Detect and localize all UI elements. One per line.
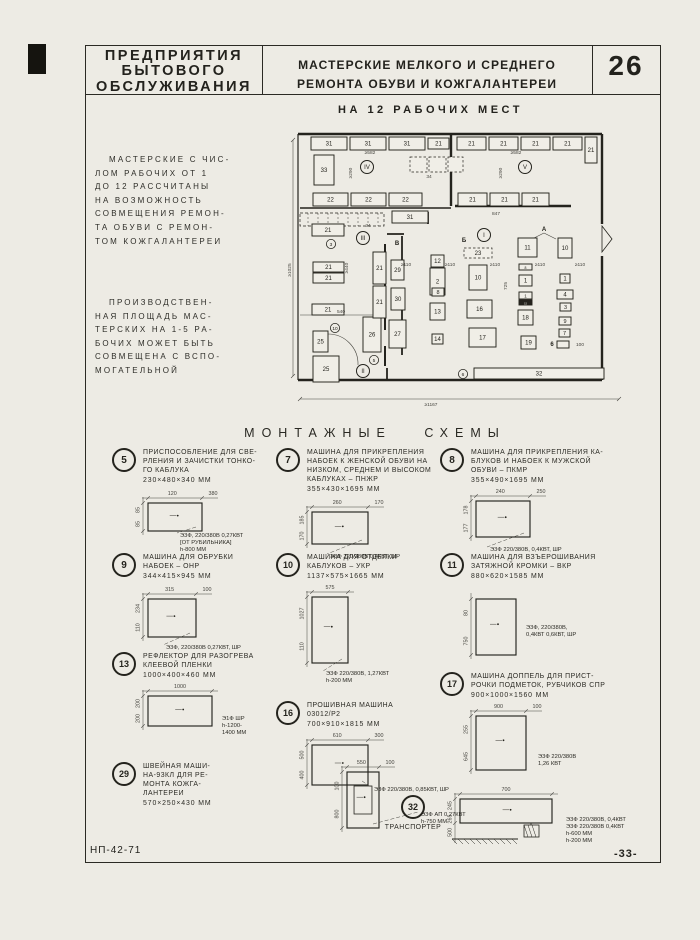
item-schematic: 80750Э3Ф, 220/380В,0,4КВТ 0,6КВТ, ШР [450, 583, 620, 667]
svg-text:500: 500 [300, 751, 306, 760]
svg-text:260: 260 [333, 500, 342, 506]
svg-text:21: 21 [532, 198, 539, 204]
svg-text:700: 700 [502, 787, 511, 793]
item-title: МАШИНА ДЛЯ ОБРУБКИ НАБОЕК – ОНР [143, 553, 233, 571]
item-schematic: 1000200200Э1Ф ШРh-1200-1400 ММ [122, 682, 287, 744]
svg-text:Б: Б [462, 238, 467, 244]
svg-text:240: 240 [496, 489, 505, 495]
item-dimensions: 355×490×1695 ММ [471, 477, 603, 484]
svg-text:34: 34 [426, 174, 432, 180]
item-header: 10МАШИНА ДЛЯ ОТДЕЛКИ КАБЛУКОВ – УКР1137×… [276, 553, 444, 580]
svg-text:847: 847 [492, 211, 500, 217]
header-cell-divider [592, 45, 593, 95]
item-text: МАШИНА ДЛЯ ОТДЕЛКИ КАБЛУКОВ – УКР1137×57… [307, 553, 397, 580]
svg-text:16: 16 [476, 307, 483, 313]
item-title: ПРОШИВНАЯ МАШИНА 03012/Р2 [307, 701, 393, 719]
svg-text:31: 31 [326, 142, 333, 148]
svg-text:≥110: ≥110 [445, 262, 456, 268]
svg-text:200: 200 [136, 714, 142, 723]
svg-text:≥1167: ≥1167 [425, 402, 438, 408]
svg-text:725: 725 [503, 282, 509, 290]
svg-text:5: 5 [373, 358, 376, 364]
svg-text:≥110: ≥110 [535, 262, 546, 268]
svg-text:21: 21 [376, 266, 383, 272]
item-number-badge: 5 [112, 448, 136, 472]
montage-item-5: 5ПРИСПОСОБЛЕНИЕ ДЛЯ СВЕ- РЛЕНИЯ И ЗАЧИСТ… [112, 448, 280, 565]
item-number-badge: 9 [112, 553, 136, 577]
svg-text:h-1200-: h-1200- [222, 723, 242, 729]
svg-text:200: 200 [136, 699, 142, 708]
svg-text:1400 ММ: 1400 ММ [222, 730, 246, 736]
svg-text:Э3Ф, 220/380В,: Э3Ф, 220/380В, [526, 625, 568, 631]
svg-text:h-200 ММ: h-200 ММ [326, 678, 352, 684]
svg-text:≥290: ≥290 [498, 167, 504, 178]
svg-text:120: 120 [168, 491, 177, 497]
item-header: 13РЕФЛЕКТОР ДЛЯ РАЗОГРЕВА КЛЕЕВОЙ ПЛЕНКИ… [112, 652, 287, 679]
svg-text:27: 27 [394, 332, 401, 338]
svg-text:Э3Ф 220/380В, 1,27КВТ: Э3Ф 220/380В, 1,27КВТ [326, 671, 390, 677]
item-title: МАШИНА ДЛЯ ВЗЪЕРОШИВАНИЯ ЗАТЯЖНОЙ КРОМКИ… [471, 553, 596, 571]
svg-text:315: 315 [165, 587, 174, 593]
svg-text:21: 21 [325, 265, 332, 271]
document-title: МАСТЕРСКИЕ МЕЛКОГО И СРЕДНЕГО РЕМОНТА ОБ… [268, 56, 586, 93]
item-text: МАШИНА ДЛЯ ПРИКРЕПЛЕНИЯ НАБОЕК К ЖЕНСКОЙ… [307, 448, 431, 493]
montage-item-7: 7МАШИНА ДЛЯ ПРИКРЕПЛЕНИЯ НАБОЕК К ЖЕНСКО… [276, 448, 444, 568]
svg-text:≥110: ≥110 [575, 262, 586, 268]
svg-text:14: 14 [434, 337, 441, 343]
registration-block [28, 44, 46, 74]
svg-text:0,4КВТ 0,6КВТ, ШР: 0,4КВТ 0,6КВТ, ШР [526, 632, 576, 638]
item-dimensions: 880×620×1585 ММ [471, 573, 596, 580]
svg-text:21: 21 [325, 228, 332, 234]
svg-text:250: 250 [537, 489, 546, 495]
svg-text:550: 550 [357, 760, 366, 766]
item-dimensions: 344×415×945 ММ [143, 573, 233, 580]
svg-text:В: В [395, 241, 400, 247]
svg-text:21: 21 [469, 198, 476, 204]
svg-text:Э3Ф, 220/380В 0,27КВТ: Э3Ф, 220/380В 0,27КВТ [180, 533, 244, 539]
svg-text:100: 100 [386, 760, 395, 766]
intro-paragraph-1: МАСТЕРСКИЕ С ЧИС- ЛОМ РАБОЧИХ ОТ 1 ДО 12… [95, 153, 295, 248]
svg-text:1000: 1000 [174, 684, 186, 690]
item-title: МАШИНА ДОППЕЛЬ ДЛЯ ПРИСТ- РОЧКИ ПОДМЕТОК… [471, 672, 605, 690]
item-text: МАШИНА ДЛЯ ОБРУБКИ НАБОЕК – ОНР344×415×9… [143, 553, 233, 580]
svg-text:≥1025: ≥1025 [287, 263, 293, 277]
montage-item-11: 11МАШИНА ДЛЯ ВЗЪЕРОШИВАНИЯ ЗАТЯЖНОЙ КРОМ… [440, 553, 620, 667]
item-title: МАШИНА ДЛЯ ПРИКРЕПЛЕНИЯ КА- БЛУКОВ И НАБ… [471, 448, 603, 475]
svg-text:31: 31 [404, 142, 411, 148]
svg-text:А: А [542, 227, 547, 233]
montage-section-title: МОНТАЖНЫЕ СХЕМЫ [95, 426, 655, 440]
svg-text:25: 25 [323, 367, 330, 373]
svg-text:500: 500 [448, 828, 454, 837]
svg-text:265: 265 [448, 815, 454, 824]
svg-text:245: 245 [448, 801, 454, 810]
svg-text:3: 3 [330, 242, 333, 248]
svg-text:100: 100 [203, 587, 212, 593]
item-schematic: 240250178177Э3Ф 220/380В, 0,4КВТ, ШР [450, 487, 608, 561]
svg-text:177: 177 [464, 524, 470, 533]
montage-item-8: 8МАШИНА ДЛЯ ПРИКРЕПЛЕНИЯ КА- БЛУКОВ И НА… [440, 448, 608, 561]
svg-text:13: 13 [434, 310, 441, 316]
svg-text:10: 10 [332, 326, 338, 332]
item-dimensions: 900×1000×1560 ММ [471, 692, 605, 699]
item-header: 11МАШИНА ДЛЯ ВЗЪЕРОШИВАНИЯ ЗАТЯЖНОЙ КРОМ… [440, 553, 620, 580]
svg-text:I: I [483, 233, 485, 239]
svg-text:17: 17 [479, 336, 486, 342]
svg-text:II: II [361, 369, 365, 375]
svg-text:80: 80 [464, 610, 470, 616]
item-title: ТРАНСПОРТЕР [385, 823, 441, 832]
svg-text:21: 21 [468, 142, 475, 148]
item-text: МАШИНА ДЛЯ ПРИКРЕПЛЕНИЯ КА- БЛУКОВ И НАБ… [471, 448, 603, 484]
svg-text:h-200 ММ: h-200 ММ [566, 838, 592, 844]
montage-item-13: 13РЕФЛЕКТОР ДЛЯ РАЗОГРЕВА КЛЕЕВОЙ ПЛЕНКИ… [112, 652, 287, 744]
item-schematic: 700245265500Э3Ф 220/380В, 0,4КВТЭ3Ф 220/… [438, 787, 696, 865]
item-text: РЕФЛЕКТОР ДЛЯ РАЗОГРЕВА КЛЕЕВОЙ ПЛЕНКИ10… [143, 652, 254, 679]
item-number-badge: 10 [276, 553, 300, 577]
svg-text:22: 22 [402, 198, 409, 204]
svg-text:300: 300 [375, 733, 384, 739]
svg-text:21: 21 [325, 308, 332, 314]
svg-text:8: 8 [436, 290, 439, 296]
item-dimensions: 230×480×340 ММ [143, 477, 257, 484]
svg-text:Э3Ф 220/380В 0,4КВТ: Э3Ф 220/380В 0,4КВТ [566, 824, 625, 830]
sheet-number: 26 [594, 50, 658, 82]
svg-text:170: 170 [300, 532, 306, 541]
svg-text:1027: 1027 [300, 608, 306, 620]
svg-text:610: 610 [333, 733, 342, 739]
svg-text:h-600 ММ: h-600 ММ [566, 831, 592, 837]
svg-text:85: 85 [136, 507, 142, 513]
svg-text:21: 21 [325, 276, 332, 282]
item-header: 8МАШИНА ДЛЯ ПРИКРЕПЛЕНИЯ КА- БЛУКОВ И НА… [440, 448, 608, 484]
item-text: МАШИНА ДОППЕЛЬ ДЛЯ ПРИСТ- РОЧКИ ПОДМЕТОК… [471, 672, 605, 699]
svg-text:800: 800 [335, 810, 341, 819]
intro-paragraph-2: ПРОИЗВОДСТВЕН- НАЯ ПЛОЩАДЬ МАС- ТЕРСКИХ … [95, 296, 295, 378]
svg-text:≥110: ≥110 [401, 262, 412, 268]
svg-text:110: 110 [136, 623, 142, 632]
svg-text:100: 100 [335, 782, 341, 791]
header-cell-divider [262, 45, 263, 95]
svg-text:900: 900 [494, 704, 503, 710]
montage-item-10: 10МАШИНА ДЛЯ ОТДЕЛКИ КАБЛУКОВ – УКР1137×… [276, 553, 444, 689]
svg-text:21: 21 [435, 142, 442, 148]
svg-text:255: 255 [464, 725, 470, 734]
document-code: НП-42-71 [90, 845, 141, 856]
scanned-document-page: { "colors": {"ink": "#24231d", "dim": "#… [0, 0, 700, 940]
item-header: 5ПРИСПОСОБЛЕНИЕ ДЛЯ СВЕ- РЛЕНИЯ И ЗАЧИСТ… [112, 448, 280, 484]
svg-text:750: 750 [464, 637, 470, 646]
svg-text:100: 100 [576, 342, 584, 348]
svg-text:21: 21 [588, 148, 595, 154]
svg-text:3: 3 [564, 305, 567, 311]
svg-text:29: 29 [394, 268, 401, 274]
svg-text:9: 9 [563, 319, 566, 325]
item-title: ШВЕЙНАЯ МАШИ- НА-93КЛ ДЛЯ РЕ- МОНТА КОЖГ… [143, 762, 212, 798]
item-number-badge: 13 [112, 652, 136, 676]
item-dimensions: 1137×575×1665 ММ [307, 573, 397, 580]
svg-text:7: 7 [563, 331, 566, 337]
montage-item-32: 32ТРАНСПОРТЕР700245265500Э3Ф 220/380В, 0… [378, 795, 448, 832]
svg-text:178: 178 [464, 506, 470, 515]
svg-text:Э3Ф 220/380В: Э3Ф 220/380В [538, 754, 576, 760]
svg-text:32: 32 [536, 372, 543, 378]
svg-text:≥440: ≥440 [344, 262, 350, 273]
svg-text:100: 100 [533, 704, 542, 710]
svg-text:Э3Ф, 220/380В 0,27КВТ, ШР: Э3Ф, 220/380В 0,27КВТ, ШР [166, 645, 241, 651]
floor-plan-title: НА 12 РАБОЧИХ МЕСТ [338, 104, 523, 116]
svg-text:21: 21 [376, 300, 383, 306]
svg-text:6: 6 [462, 372, 465, 378]
svg-text:V: V [523, 165, 527, 171]
item-number-badge: 16 [276, 701, 300, 725]
item-text: ШВЕЙНАЯ МАШИ- НА-93КЛ ДЛЯ РЕ- МОНТА КОЖГ… [143, 762, 212, 807]
item-dimensions: 355×430×1695 ММ [307, 486, 431, 493]
svg-text:22: 22 [327, 198, 334, 204]
item-number-badge: 11 [440, 553, 464, 577]
svg-text:185: 185 [300, 516, 306, 525]
svg-text:1,26 КВТ: 1,26 КВТ [538, 761, 562, 767]
svg-text:22: 22 [365, 198, 372, 204]
item-number-badge: 17 [440, 672, 464, 696]
svg-text:12: 12 [434, 259, 441, 265]
svg-text:8: 8 [525, 266, 527, 270]
item-title: РЕФЛЕКТОР ДЛЯ РАЗОГРЕВА КЛЕЕВОЙ ПЛЕНКИ [143, 652, 254, 670]
svg-text:34: 34 [365, 223, 371, 229]
item-text: ТРАНСПОРТЕР [385, 823, 441, 832]
item-number-badge: 29 [112, 762, 136, 786]
svg-text:575: 575 [326, 585, 335, 591]
floor-plan-drawing: 3131312121212121213322222221212131212121… [290, 118, 644, 412]
svg-text:IV: IV [364, 165, 370, 171]
item-schematic: 5751027110Э3Ф 220/380В, 1,27КВТh-200 ММ [286, 583, 444, 689]
svg-text:31: 31 [407, 215, 414, 221]
svg-text:540: 540 [337, 309, 345, 315]
montage-item-9: 9МАШИНА ДЛЯ ОБРУБКИ НАБОЕК – ОНР344×415×… [112, 553, 280, 659]
svg-text:18: 18 [522, 316, 529, 322]
svg-text:380: 380 [209, 491, 218, 497]
svg-text:33: 33 [321, 168, 328, 174]
item-text: МАШИНА ДЛЯ ВЗЪЕРОШИВАНИЯ ЗАТЯЖНОЙ КРОМКИ… [471, 553, 596, 580]
svg-text:85: 85 [136, 521, 142, 527]
svg-text:Э1Ф ШР: Э1Ф ШР [222, 716, 245, 722]
svg-text:19: 19 [525, 341, 532, 347]
item-dimensions: 700×910×1815 ММ [307, 721, 393, 728]
svg-text:21: 21 [501, 198, 508, 204]
svg-text:26: 26 [369, 333, 376, 339]
item-text: ПРОШИВНАЯ МАШИНА 03012/Р2700×910×1815 ММ [307, 701, 393, 728]
svg-text:30: 30 [395, 297, 402, 303]
item-header: 17МАШИНА ДОППЕЛЬ ДЛЯ ПРИСТ- РОЧКИ ПОДМЕТ… [440, 672, 650, 699]
svg-text:≥110: ≥110 [490, 262, 501, 268]
item-schematic: 315100234110Э3Ф, 220/380В 0,27КВТ, ШР [122, 583, 280, 659]
svg-text:Э3Ф 220/380В, 0,4КВТ: Э3Ф 220/380В, 0,4КВТ [566, 817, 626, 823]
svg-text:6: 6 [550, 342, 554, 348]
svg-text:234: 234 [136, 604, 142, 613]
svg-text:21: 21 [564, 142, 571, 148]
item-text: ПРИСПОСОБЛЕНИЕ ДЛЯ СВЕ- РЛЕНИЯ И ЗАЧИСТК… [143, 448, 257, 484]
svg-text:III: III [360, 236, 365, 242]
svg-text:≥582: ≥582 [511, 150, 522, 156]
item-header: 9МАШИНА ДЛЯ ОБРУБКИ НАБОЕК – ОНР344×415×… [112, 553, 280, 580]
svg-text:10: 10 [475, 276, 482, 282]
item-title: МАШИНА ДЛЯ ПРИКРЕПЛЕНИЯ НАБОЕК К ЖЕНСКОЙ… [307, 448, 431, 484]
svg-text:11: 11 [524, 246, 531, 252]
item-dimensions: 570×250×430 ММ [143, 800, 212, 807]
svg-text:25: 25 [317, 340, 324, 346]
organization-title: ПРЕДПРИЯТИЯ БЫТОВОГО ОБСЛУЖИВАНИЯ [89, 49, 259, 95]
page-number-footer: -33- [614, 848, 638, 860]
item-header: 7МАШИНА ДЛЯ ПРИКРЕПЛЕНИЯ НАБОЕК К ЖЕНСКО… [276, 448, 444, 493]
svg-text:[ОТ РУБИЛЬНИКА]: [ОТ РУБИЛЬНИКА] [180, 540, 232, 546]
svg-text:170: 170 [375, 500, 384, 506]
svg-text:21: 21 [532, 142, 539, 148]
svg-text:23: 23 [475, 251, 482, 257]
svg-text:≥290: ≥290 [348, 167, 354, 178]
svg-text:≥582: ≥582 [365, 150, 376, 156]
item-title: ПРИСПОСОБЛЕНИЕ ДЛЯ СВЕ- РЛЕНИЯ И ЗАЧИСТК… [143, 448, 257, 475]
item-number-badge: 8 [440, 448, 464, 472]
svg-text:10: 10 [562, 246, 569, 252]
svg-text:31: 31 [365, 142, 372, 148]
svg-text:21: 21 [500, 142, 507, 148]
svg-text:110: 110 [300, 642, 306, 651]
item-title: МАШИНА ДЛЯ ОТДЕЛКИ КАБЛУКОВ – УКР [307, 553, 397, 571]
item-number-badge: 7 [276, 448, 300, 472]
item-number-badge: 32 [401, 795, 425, 819]
item-dimensions: 1000×400×460 ММ [143, 672, 254, 679]
